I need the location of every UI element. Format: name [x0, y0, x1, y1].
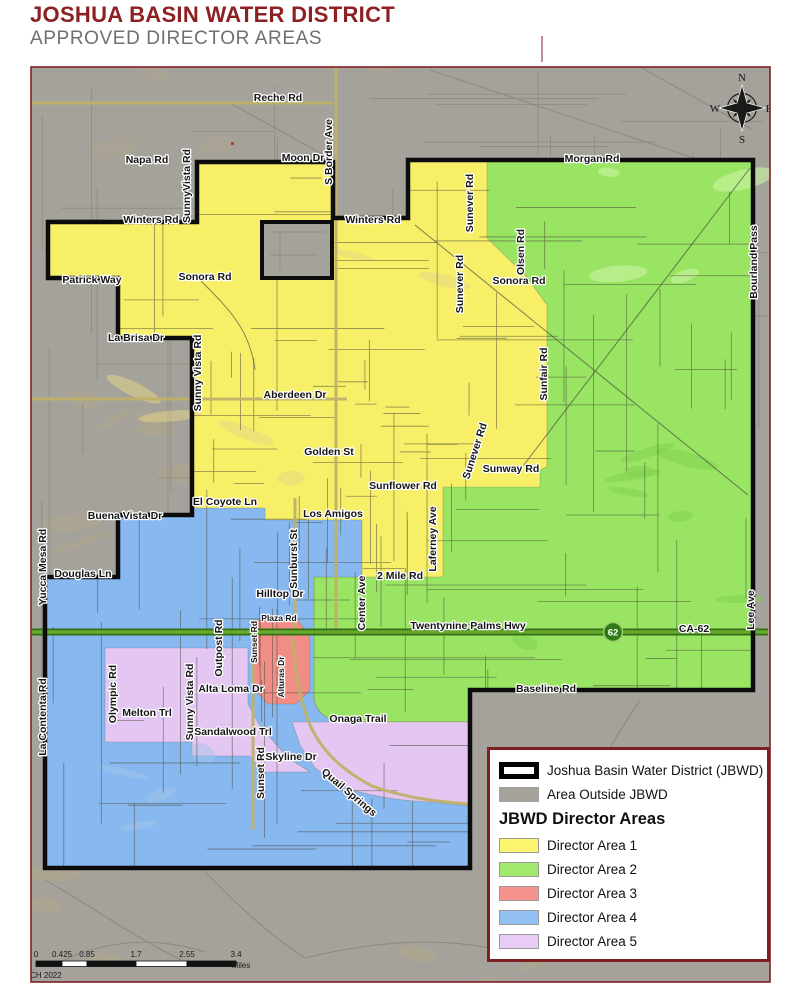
compass-s: S — [739, 134, 745, 146]
area-color-swatch — [499, 934, 539, 949]
road-label: Onaga Trail — [329, 713, 386, 725]
compass-w: W — [710, 103, 721, 115]
road-label: Aberdeen Dr — [263, 389, 326, 401]
scale-unit: Miles — [232, 961, 251, 970]
legend-district-label: Joshua Basin Water District (JBWD) — [547, 763, 763, 778]
road-label: CA-62 — [679, 623, 710, 635]
scale-tick: 2.55 — [179, 950, 195, 959]
road-label: Outpost Rd — [213, 619, 225, 676]
road-label: Sunset Rd — [249, 621, 259, 663]
legend-area-label: Director Area 4 — [547, 910, 637, 925]
road-label: Los Amigos — [303, 508, 363, 520]
legend-area-label: Director Area 3 — [547, 886, 637, 901]
scale-tick: 3.4 — [230, 950, 242, 959]
road-label: Douglas Ln — [54, 568, 111, 580]
road-label: La Brisa Dr — [108, 332, 164, 344]
road-label: Sunfair Rd — [538, 347, 550, 400]
road-label: Moon Dr — [282, 152, 325, 164]
road-label: Hilltop Dr — [256, 588, 303, 600]
compass-n: N — [738, 72, 746, 84]
area-color-swatch — [499, 886, 539, 901]
area-color-swatch — [499, 838, 539, 853]
legend-item-area: Director Area 5 — [499, 929, 761, 953]
road-label: Laferney Ave — [427, 506, 439, 571]
road-label: Alta Loma Dr — [198, 683, 263, 695]
road-label: Sunever Rd — [464, 174, 476, 232]
outside-area-swatch — [499, 787, 539, 802]
road-label: Patrick Way — [62, 274, 121, 286]
road-label: SunnyVista Rd — [181, 149, 193, 223]
page-title: JOSHUA BASIN WATER DISTRICT — [30, 2, 395, 28]
title-block: JOSHUA BASIN WATER DISTRICT APPROVED DIR… — [30, 2, 395, 50]
road-label: Lee Ave — [745, 590, 757, 630]
legend-area-label: Director Area 5 — [547, 934, 637, 949]
area-color-swatch — [499, 862, 539, 877]
road-label: Sunever Rd — [454, 255, 466, 313]
legend-item-area: Director Area 1 — [499, 833, 761, 857]
road-label: Plaza Rd — [261, 613, 296, 623]
road-label: Buena Vista Dr — [88, 510, 163, 522]
road-label: Olympic Rd — [107, 665, 119, 723]
legend-header: JBWD Director Areas — [499, 806, 761, 833]
legend-item-area: Director Area 3 — [499, 881, 761, 905]
district-boundary-swatch — [499, 762, 539, 779]
compass-e: E — [766, 103, 773, 115]
page-subtitle: APPROVED DIRECTOR AREAS — [30, 28, 395, 50]
road-label: Golden St — [304, 446, 354, 458]
road-label: Sunburst St — [288, 529, 300, 589]
road-label: Olsen Rd — [515, 229, 527, 275]
legend-area-label: Director Area 2 — [547, 862, 637, 877]
scale-tick: 0 — [34, 950, 39, 959]
page: JOSHUA BASIN WATER DISTRICT APPROVED DIR… — [0, 0, 800, 988]
notch-outside-region — [262, 222, 332, 278]
legend-item-outside: Area Outside JBWD — [499, 782, 761, 806]
road-label: Winters Rd — [123, 214, 178, 226]
road-label: Morgan Rd — [565, 153, 620, 165]
legend: Joshua Basin Water District (JBWD) Area … — [487, 747, 770, 962]
road-label: Yucca Mesa Rd — [37, 529, 49, 605]
legend-area-label: Director Area 1 — [547, 838, 637, 853]
road-label: Sonora Rd — [178, 271, 231, 283]
legend-outside-label: Area Outside JBWD — [547, 787, 668, 802]
road-label: Bourland Pass — [748, 225, 760, 299]
map-date: MARCH 2022 — [12, 971, 62, 980]
road-label: S Border Ave — [323, 119, 335, 185]
road-label: Sunflower Rd — [369, 480, 437, 492]
road-label: Melton Trl — [122, 707, 172, 719]
road-label: Baseline Rd — [516, 683, 576, 695]
road-label: Sunway Rd — [483, 463, 540, 475]
scale-tick: 1.7 — [130, 950, 142, 959]
legend-item-area: Director Area 4 — [499, 905, 761, 929]
road-label: Winters Rd — [345, 214, 400, 226]
road-label: Napa Rd — [126, 154, 169, 166]
road-label: 2 Mile Rd — [377, 570, 423, 582]
scale-tick: 0.85 — [79, 950, 95, 959]
landmark-dot — [231, 142, 234, 145]
road-label: Center Ave — [356, 576, 368, 631]
highway-shield-icon: 62 — [604, 623, 623, 642]
road-label: El Coyote Ln — [193, 496, 257, 508]
scale-tick: 0.425 — [52, 950, 73, 959]
road-label: Sonora Rd — [492, 275, 545, 287]
road-label: Sandalwood Trl — [194, 726, 272, 738]
road-label: Twentynine Palms Hwy — [410, 620, 525, 632]
road-label: Skyline Dr — [265, 751, 316, 763]
road-label: Sunny Vista Rd — [192, 335, 204, 412]
legend-area-list: Director Area 1Director Area 2Director A… — [499, 833, 761, 953]
road-label: Alturas Dr — [276, 656, 286, 698]
legend-item-area: Director Area 2 — [499, 857, 761, 881]
road-label: Reche Rd — [254, 92, 302, 104]
legend-item-district: Joshua Basin Water District (JBWD) — [499, 758, 761, 782]
area-color-swatch — [499, 910, 539, 925]
road-label: La Contenta Rd — [37, 678, 49, 756]
svg-text:62: 62 — [608, 628, 619, 639]
